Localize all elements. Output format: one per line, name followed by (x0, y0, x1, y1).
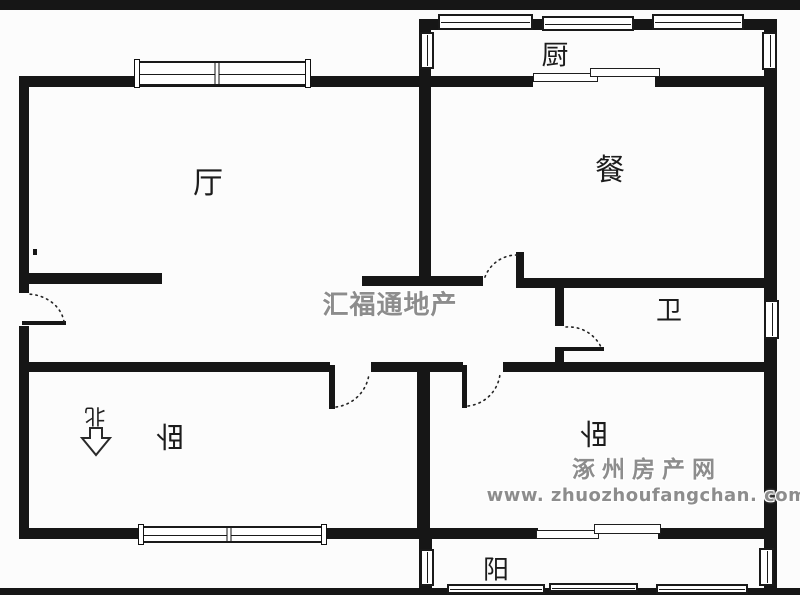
window-end-cap (134, 59, 140, 88)
wall-segment (417, 362, 430, 539)
floorplan-canvas: 汇福通地产 涿州房产网 www. zhuozhoufangchan. com 北… (0, 0, 800, 595)
room-label-living-room: 厅 (193, 158, 223, 202)
window (542, 16, 634, 31)
window-mullion (215, 63, 220, 84)
window (420, 32, 434, 69)
window (764, 300, 779, 339)
window-glass-line (772, 303, 773, 336)
window (438, 14, 533, 30)
window (652, 14, 744, 30)
room-label-kitchen: 厨 (542, 34, 569, 73)
door-swing-arc (484, 255, 517, 280)
wall-segment (655, 76, 776, 87)
window (135, 61, 310, 86)
wall-segment (329, 365, 335, 409)
window-glass-line (427, 552, 428, 583)
window-end-cap (138, 524, 144, 545)
wall-segment (503, 362, 776, 372)
window (420, 549, 434, 586)
wall-segment (0, 0, 800, 10)
wall-segment (658, 528, 776, 539)
sliding-door (590, 68, 660, 77)
window (549, 583, 638, 592)
window-glass-line (767, 551, 768, 583)
door-swing-arc (468, 374, 500, 406)
window-end-cap (305, 59, 311, 88)
sliding-door (533, 73, 598, 82)
wall-segment (563, 347, 604, 351)
window (139, 526, 326, 543)
wall-segment (22, 321, 66, 325)
window-glass-line (142, 535, 323, 536)
room-label-bathroom: 卫 (656, 291, 682, 328)
north-label: 北 (85, 402, 106, 432)
window-glass-line (552, 588, 635, 589)
window-end-cap (321, 524, 327, 545)
window-glass-line (659, 589, 745, 590)
wall-segment (19, 362, 330, 372)
wall-segment (462, 365, 467, 408)
room-label-balcony: 阳 (483, 550, 509, 587)
wall-segment (555, 281, 564, 326)
door-swing-arc (27, 294, 64, 322)
north-arrow-icon (82, 428, 110, 455)
window-glass-line (545, 24, 631, 25)
wall-segment (19, 76, 29, 293)
window-glass-line (441, 22, 530, 23)
wall-segment (417, 528, 538, 539)
wall-segment (33, 249, 37, 255)
window (762, 32, 777, 70)
window (656, 584, 748, 594)
wall-segment (19, 326, 29, 539)
wall-segment (419, 76, 533, 87)
sliding-door (536, 530, 599, 539)
window-glass-line (770, 35, 771, 67)
room-label-bedroom-left: 卧 (155, 417, 184, 459)
window-glass-line (655, 22, 741, 23)
sliding-door (594, 524, 661, 534)
door-swing-arc (336, 374, 369, 407)
room-label-dining-room: 餐 (595, 145, 625, 189)
window-glass-line (450, 589, 542, 590)
window (759, 548, 774, 586)
door-swing-arc (566, 327, 601, 347)
watermark-site-name: 涿州房产网 (487, 450, 800, 484)
window-glass-line (138, 74, 307, 75)
watermark-agency: 汇福通地产 (322, 285, 457, 322)
watermark-site: 涿州房产网 www. zhuozhoufangchan. com (487, 450, 800, 506)
watermark-site-url: www. zhuozhoufangchan. com (487, 485, 800, 506)
wall-segment (19, 273, 162, 284)
window-mullion (226, 528, 231, 541)
window-glass-line (427, 35, 428, 66)
